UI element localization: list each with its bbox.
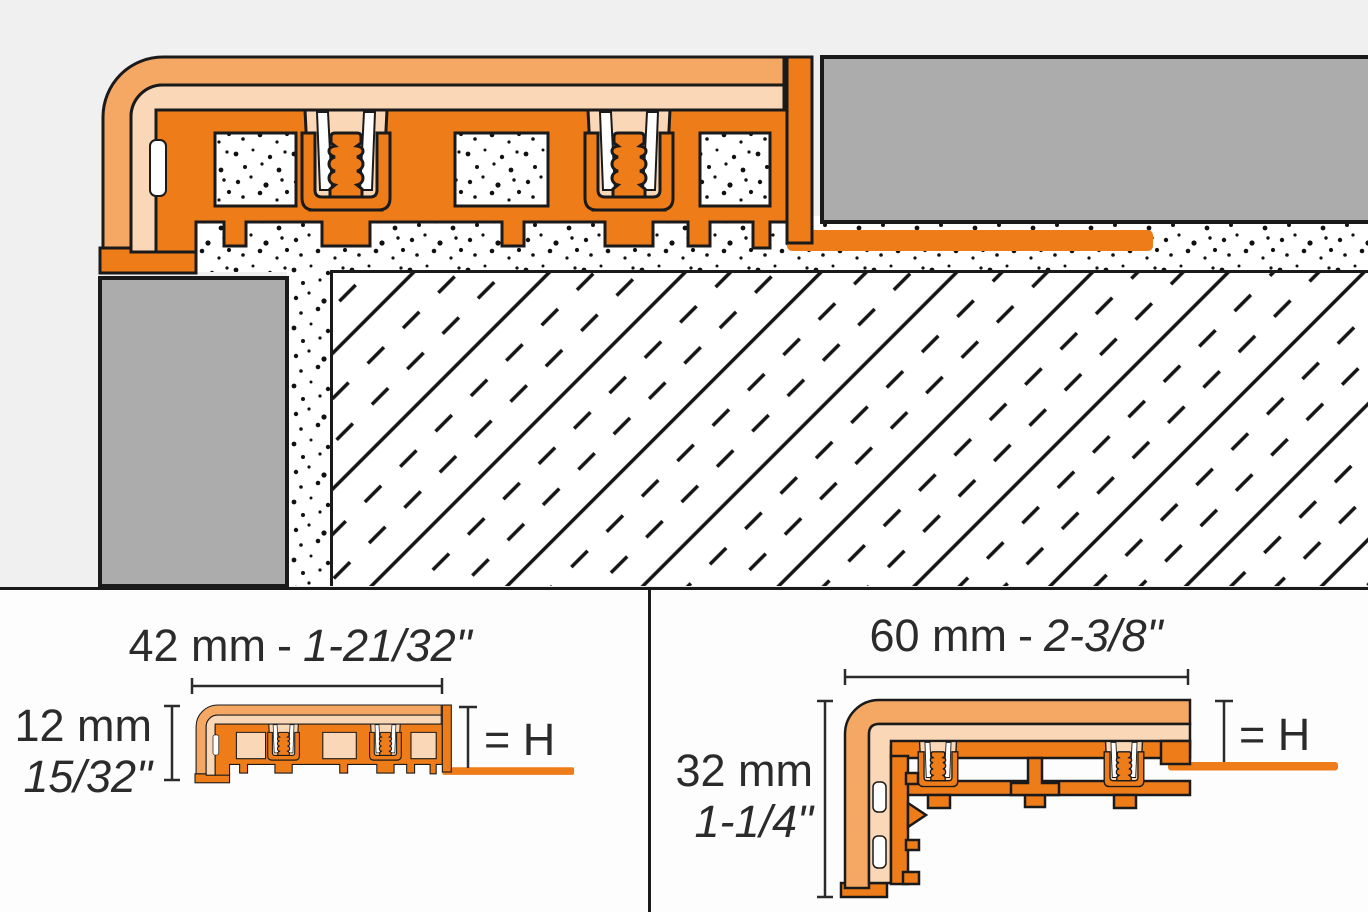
h-reference-line — [1215, 701, 1233, 762]
dimension-panels: 42 mm-1-21/32" 12 mm 15/32" = H — [0, 587, 1368, 912]
riser-tile — [100, 278, 287, 586]
height-dimension-label: 32 mm 1-1/4" — [651, 745, 813, 847]
width-dimension-line — [845, 669, 1188, 685]
h-reference-label: = H — [484, 716, 555, 764]
installation-diagram: 42 mm-1-21/32" 12 mm 15/32" = H — [0, 0, 1368, 912]
mortar-cavity-1 — [213, 131, 298, 208]
mortar-cavity-3 — [698, 131, 772, 208]
dimension-panel-low-profile: 42 mm-1-21/32" 12 mm 15/32" = H — [0, 590, 648, 912]
height-dimension-line — [817, 701, 833, 897]
width-dimension-label: 42 mm-1-21/32" — [130, 622, 470, 670]
h-reference-line — [459, 707, 477, 768]
dimension-panel-corner-profile: 60 mm-2-3/8" 32 mm 1-1/4" = H — [648, 590, 1368, 912]
height-dimension-line — [164, 706, 180, 780]
installation-cross-section — [0, 0, 1368, 587]
width-dimension-line — [192, 678, 442, 694]
mortar-cavity-2 — [453, 131, 550, 208]
width-dimension-label: 60 mm-2-3/8" — [841, 612, 1191, 660]
tread-tile — [822, 57, 1368, 222]
h-reference-label: = H — [1239, 711, 1310, 759]
substrate-hatch — [330, 270, 1368, 586]
height-dimension-label: 12 mm 15/32" — [0, 700, 152, 802]
mortar-strip-vertical — [287, 270, 330, 586]
